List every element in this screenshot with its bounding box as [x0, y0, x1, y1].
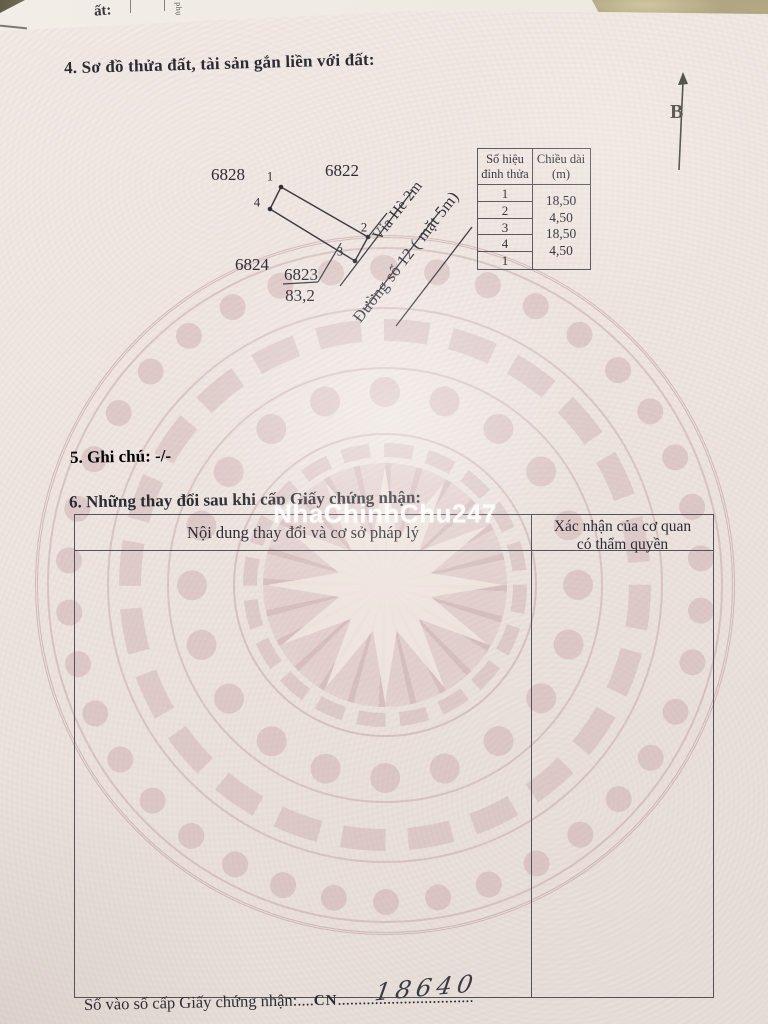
parcel-area-value: 83,2	[285, 286, 315, 306]
vertex-id-cell: 2	[478, 203, 532, 219]
edge-length-cell: 18,50	[533, 226, 589, 242]
site-watermark: NhaChinhChu247	[273, 499, 497, 530]
photo-scene: ất: phụ 4. Sơ đồ thửa đất, tài sản gắn l…	[0, 0, 768, 1024]
changes-table: Nội dung thay đổi và cơ sở pháp lý Xác n…	[74, 514, 714, 998]
registry-dots: ...	[337, 989, 350, 1008]
north-label: B	[670, 101, 683, 124]
background-document-rule	[0, 25, 27, 30]
vertex-id-cell: 4	[478, 236, 532, 252]
background-document-edge-text: phụ	[174, 2, 183, 16]
background-document-partial-text: ất:	[93, 2, 112, 20]
edge-length-cell: 18,50	[533, 193, 589, 209]
changes-table-col2-header: Xác nhận của cơ quan có thẩm quyền	[532, 518, 713, 554]
section5-label: 5. Ghi chú:	[70, 446, 151, 466]
parcel-number-6828: 6828	[211, 165, 245, 185]
edge-length-cell: 4,50	[533, 243, 589, 259]
section5-note-row: 5. Ghi chú: -/-	[70, 446, 171, 468]
background-document-table-line	[164, 0, 165, 11]
vertex-id-cell: 1	[478, 253, 532, 269]
vertex-id-cell: 3	[478, 220, 532, 236]
vertex-table-col2-header: Chiều dài (m)	[533, 152, 589, 182]
plot-diagram	[140, 130, 490, 340]
background-document-table-line	[130, 0, 131, 13]
table-divider	[531, 515, 532, 997]
vertex-length-table: Số hiệu đỉnh thửa Chiều dài (m) 1 2 3 4 …	[477, 148, 591, 270]
registry-label: Số vào sổ cấp Giấy chứng nhận:	[84, 991, 298, 1014]
vertex-id-cell: 1	[478, 186, 532, 202]
vertex-label-1: 1	[267, 170, 273, 185]
vertex-label-3: 3	[337, 245, 343, 260]
parcel-number-6822: 6822	[325, 161, 359, 181]
registry-cn-prefix: CN	[314, 993, 338, 1009]
section5-value: -/-	[155, 446, 171, 465]
north-arrow-icon	[650, 70, 710, 180]
table-divider	[478, 184, 590, 185]
vertex-table-col1-header: Số hiệu đỉnh thửa	[478, 152, 532, 182]
vertex-label-2: 2	[361, 221, 367, 236]
parcel-number-6823: 6823	[284, 265, 318, 285]
vertex-label-4: 4	[254, 196, 260, 211]
section4-title: 4. Sơ đồ thửa đất, tài sản gắn liền với …	[64, 50, 375, 79]
edge-length-cell: 4,50	[533, 210, 589, 226]
certificate-page: 4. Sơ đồ thửa đất, tài sản gắn liền với …	[0, 0, 768, 1024]
parcel-number-6824: 6824	[235, 255, 269, 275]
registry-dots: ....	[297, 990, 314, 1009]
